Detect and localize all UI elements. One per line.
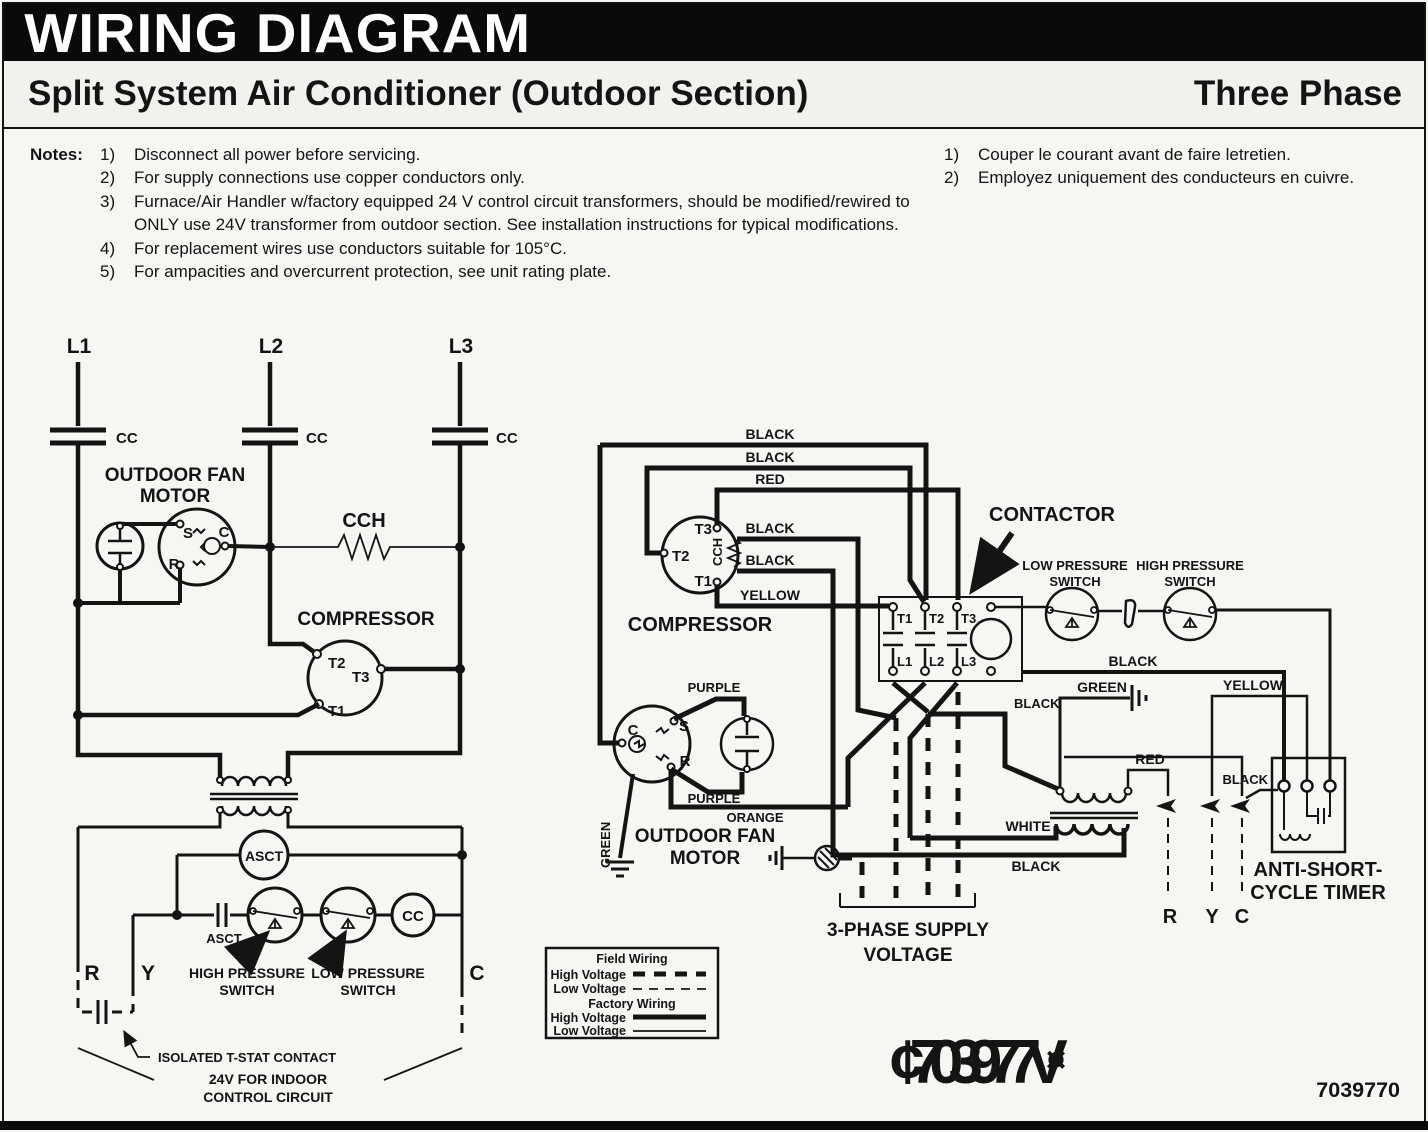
transformer-right xyxy=(1050,788,1138,835)
legend-field-wiring: Field Wiring xyxy=(596,952,667,966)
wire-label-black: BLACK xyxy=(1223,772,1269,787)
svg-text:T2: T2 xyxy=(328,655,346,672)
svg-text:CC: CC xyxy=(496,430,518,447)
svg-text:LOW PRESSURE: LOW PRESSURE xyxy=(311,965,425,981)
wire-red-spade xyxy=(1128,770,1168,796)
svg-text:CCH: CCH xyxy=(342,510,385,532)
asct-coil: ASCT xyxy=(245,848,284,864)
wire-label-white: WHITE xyxy=(1005,818,1050,834)
wire-label-orange: ORANGE xyxy=(726,810,783,825)
svg-text:CC: CC xyxy=(402,908,424,925)
y-terminal-label: Y xyxy=(1205,906,1219,928)
svg-text:MOTOR: MOTOR xyxy=(140,486,211,507)
wire-label-purple: PURPLE xyxy=(688,791,741,806)
svg-text:SWITCH: SWITCH xyxy=(340,982,395,998)
phase-l3-label: L3 xyxy=(449,335,474,358)
contactor-coil xyxy=(971,619,1011,659)
svg-text:T2: T2 xyxy=(929,611,944,626)
wiring-legend: Field Wiring High Voltage Low Voltage Fa… xyxy=(546,948,718,1038)
wire-black-to-transformer xyxy=(928,714,1058,789)
wire-label-red: RED xyxy=(755,471,785,487)
y-terminal-label: Y xyxy=(141,962,155,985)
wire-riser-left xyxy=(600,445,620,743)
hps-pointer-arrow xyxy=(240,937,263,959)
svg-text:3-PHASE SUPPLY: 3-PHASE SUPPLY xyxy=(827,920,989,941)
asct-contact xyxy=(218,903,226,927)
high-pressure-switch-left xyxy=(248,888,302,942)
left-schematic: L1 L2 L3 CC CC CC xyxy=(50,335,518,1105)
wire-red xyxy=(717,490,958,600)
plug-connector xyxy=(1125,600,1135,627)
wire-l3-descent xyxy=(910,683,957,838)
svg-text:ANTI-SHORT-: ANTI-SHORT- xyxy=(1254,859,1383,881)
svg-text:SWITCH: SWITCH xyxy=(219,982,274,998)
wire-label-green: GREEN xyxy=(598,822,613,868)
control-circuit-24v: ASCT ASCT xyxy=(78,827,485,1105)
svg-text:L3: L3 xyxy=(961,654,976,669)
contactor-contact-l3: CC xyxy=(288,362,518,778)
svg-text:T3: T3 xyxy=(694,521,712,538)
wire-label-black: BLACK xyxy=(1109,653,1158,669)
fan-c-terminal: C xyxy=(219,524,230,541)
wire-label-black: BLACK xyxy=(746,552,795,568)
lps-pointer-arrow xyxy=(330,938,342,959)
tstat-label: ISOLATED T-STAT CONTACT xyxy=(158,1050,336,1065)
fan-capacitor-right xyxy=(721,716,773,772)
schematic-canvas: L1 L2 L3 CC CC CC xyxy=(0,0,1428,1132)
stamp-watermark: ¢703977V xyxy=(890,1028,1067,1097)
svg-text:L2: L2 xyxy=(929,654,944,669)
cch-label-right: CCH xyxy=(710,538,725,566)
spade-connectors xyxy=(1156,799,1250,813)
wire-label-black: BLACK xyxy=(746,520,795,536)
fan-ground: GREEN xyxy=(598,774,634,876)
outdoor-fan-motor-right: C S R OUTDOOR FAN MOTOR xyxy=(614,706,775,869)
contactor-label: CONTACTOR xyxy=(989,504,1115,526)
wiring-diagram-page: WIRING DIAGRAM Split System Air Conditio… xyxy=(0,0,1428,1132)
wire-label-black: BLACK xyxy=(1014,696,1060,711)
svg-text:CYCLE TIMER: CYCLE TIMER xyxy=(1250,882,1386,904)
wire-label-yellow: YELLOW xyxy=(740,587,801,603)
fan-r-terminal: R xyxy=(680,753,691,770)
bottom-band xyxy=(0,1121,1428,1130)
wire-label-yellow: YELLOW xyxy=(1223,677,1284,693)
svg-text:High Voltage: High Voltage xyxy=(551,968,627,982)
svg-text:CC: CC xyxy=(306,430,328,447)
svg-text:HIGH PRESSURE: HIGH PRESSURE xyxy=(189,965,305,981)
cch-heater-left: CCH xyxy=(270,510,460,559)
fan-s-terminal: S xyxy=(183,525,193,542)
svg-text:MOTOR: MOTOR xyxy=(670,848,741,869)
phase-l2-label: L2 xyxy=(259,335,284,358)
svg-text:VOLTAGE: VOLTAGE xyxy=(863,945,952,966)
svg-text:T1: T1 xyxy=(328,703,346,720)
anti-short-cycle-timer: BLACK ANTI-SHORT- CYCLE TIMER xyxy=(1223,758,1387,904)
wire-purple-bottom xyxy=(671,769,742,792)
svg-text:Low Voltage: Low Voltage xyxy=(553,982,626,996)
high-pressure-switch-right: HIGH PRESSURE SWITCH xyxy=(1136,558,1244,640)
wire-label-black: BLACK xyxy=(746,449,795,465)
fan-c-terminal: C xyxy=(628,722,639,739)
svg-text:OUTDOOR FAN: OUTDOOR FAN xyxy=(105,465,245,486)
svg-text:ASCT: ASCT xyxy=(206,931,241,946)
low-pressure-switch-right: LOW PRESSURE SWITCH xyxy=(1022,558,1128,640)
svg-text:CONTROL CIRCUIT: CONTROL CIRCUIT xyxy=(203,1089,333,1105)
svg-text:T1: T1 xyxy=(694,573,712,590)
right-schematic: BLACK BLACK RED BLACK BLACK YELLOW T3 T2… xyxy=(598,426,1386,966)
fan-s-terminal: S xyxy=(679,718,689,735)
wire-purple-top xyxy=(674,699,744,719)
wire-c-to-l2 xyxy=(228,546,270,547)
footer-marks: ¢703977V ¤ 7039770 xyxy=(890,1028,1400,1102)
svg-text:T3: T3 xyxy=(352,669,370,686)
svg-text:Low Voltage: Low Voltage xyxy=(553,1024,626,1038)
wire-secondary xyxy=(78,813,462,827)
phase-l1-label: L1 xyxy=(67,335,92,358)
c-terminal-label: C xyxy=(469,962,484,985)
svg-text:High Voltage: High Voltage xyxy=(551,1011,627,1025)
wire-label-purple: PURPLE xyxy=(688,680,741,695)
svg-text:T1: T1 xyxy=(897,611,912,626)
svg-text:24V FOR INDOOR: 24V FOR INDOOR xyxy=(209,1071,327,1087)
ryc-dashed-lines xyxy=(1168,818,1242,898)
svg-text:SWITCH: SWITCH xyxy=(1049,574,1100,589)
ground-screw xyxy=(770,846,852,870)
cc-coil: CC xyxy=(392,894,434,936)
tstat-pointer-arrow xyxy=(125,1033,150,1057)
low-pressure-switch-left xyxy=(321,888,375,942)
wire-t1-to-l1 xyxy=(78,704,319,715)
wire-cap-r-to-l1 xyxy=(78,568,180,603)
stamp-symbol: ¤ xyxy=(1046,1039,1066,1080)
svg-text:L1: L1 xyxy=(897,654,912,669)
r-terminal-label: R xyxy=(84,962,99,985)
transformer-left xyxy=(210,777,298,815)
cch-element-right xyxy=(728,539,740,567)
wire-label-green: GREEN xyxy=(1077,679,1127,695)
tstat-contact xyxy=(98,1000,106,1024)
svg-text:COMPRESSOR: COMPRESSOR xyxy=(628,614,773,636)
wire-label-black: BLACK xyxy=(746,426,795,442)
transformer-ground: GREEN xyxy=(1060,679,1146,788)
wire-label-black: BLACK xyxy=(1012,858,1061,874)
svg-text:LOW PRESSURE: LOW PRESSURE xyxy=(1022,558,1128,573)
svg-text:OUTDOOR FAN: OUTDOOR FAN xyxy=(635,826,775,847)
svg-text:CC: CC xyxy=(116,430,138,447)
fan-capacitor-left xyxy=(97,523,143,570)
svg-text:HIGH PRESSURE: HIGH PRESSURE xyxy=(1136,558,1244,573)
svg-text:T3: T3 xyxy=(961,611,976,626)
c-terminal-label: C xyxy=(1235,906,1249,928)
r-terminal-label: R xyxy=(1163,906,1178,928)
contactor-pointer-arrow xyxy=(976,533,1012,585)
part-number: 7039770 xyxy=(1316,1078,1400,1102)
svg-text:T2: T2 xyxy=(672,548,690,565)
svg-text:COMPRESSOR: COMPRESSOR xyxy=(297,609,435,630)
fan-r-terminal: R xyxy=(169,556,180,573)
wire-label-red: RED xyxy=(1135,751,1165,767)
contactor: T1 T2 T3 L1 L2 L3 xyxy=(879,597,1022,681)
legend-factory-wiring: Factory Wiring xyxy=(588,997,675,1011)
